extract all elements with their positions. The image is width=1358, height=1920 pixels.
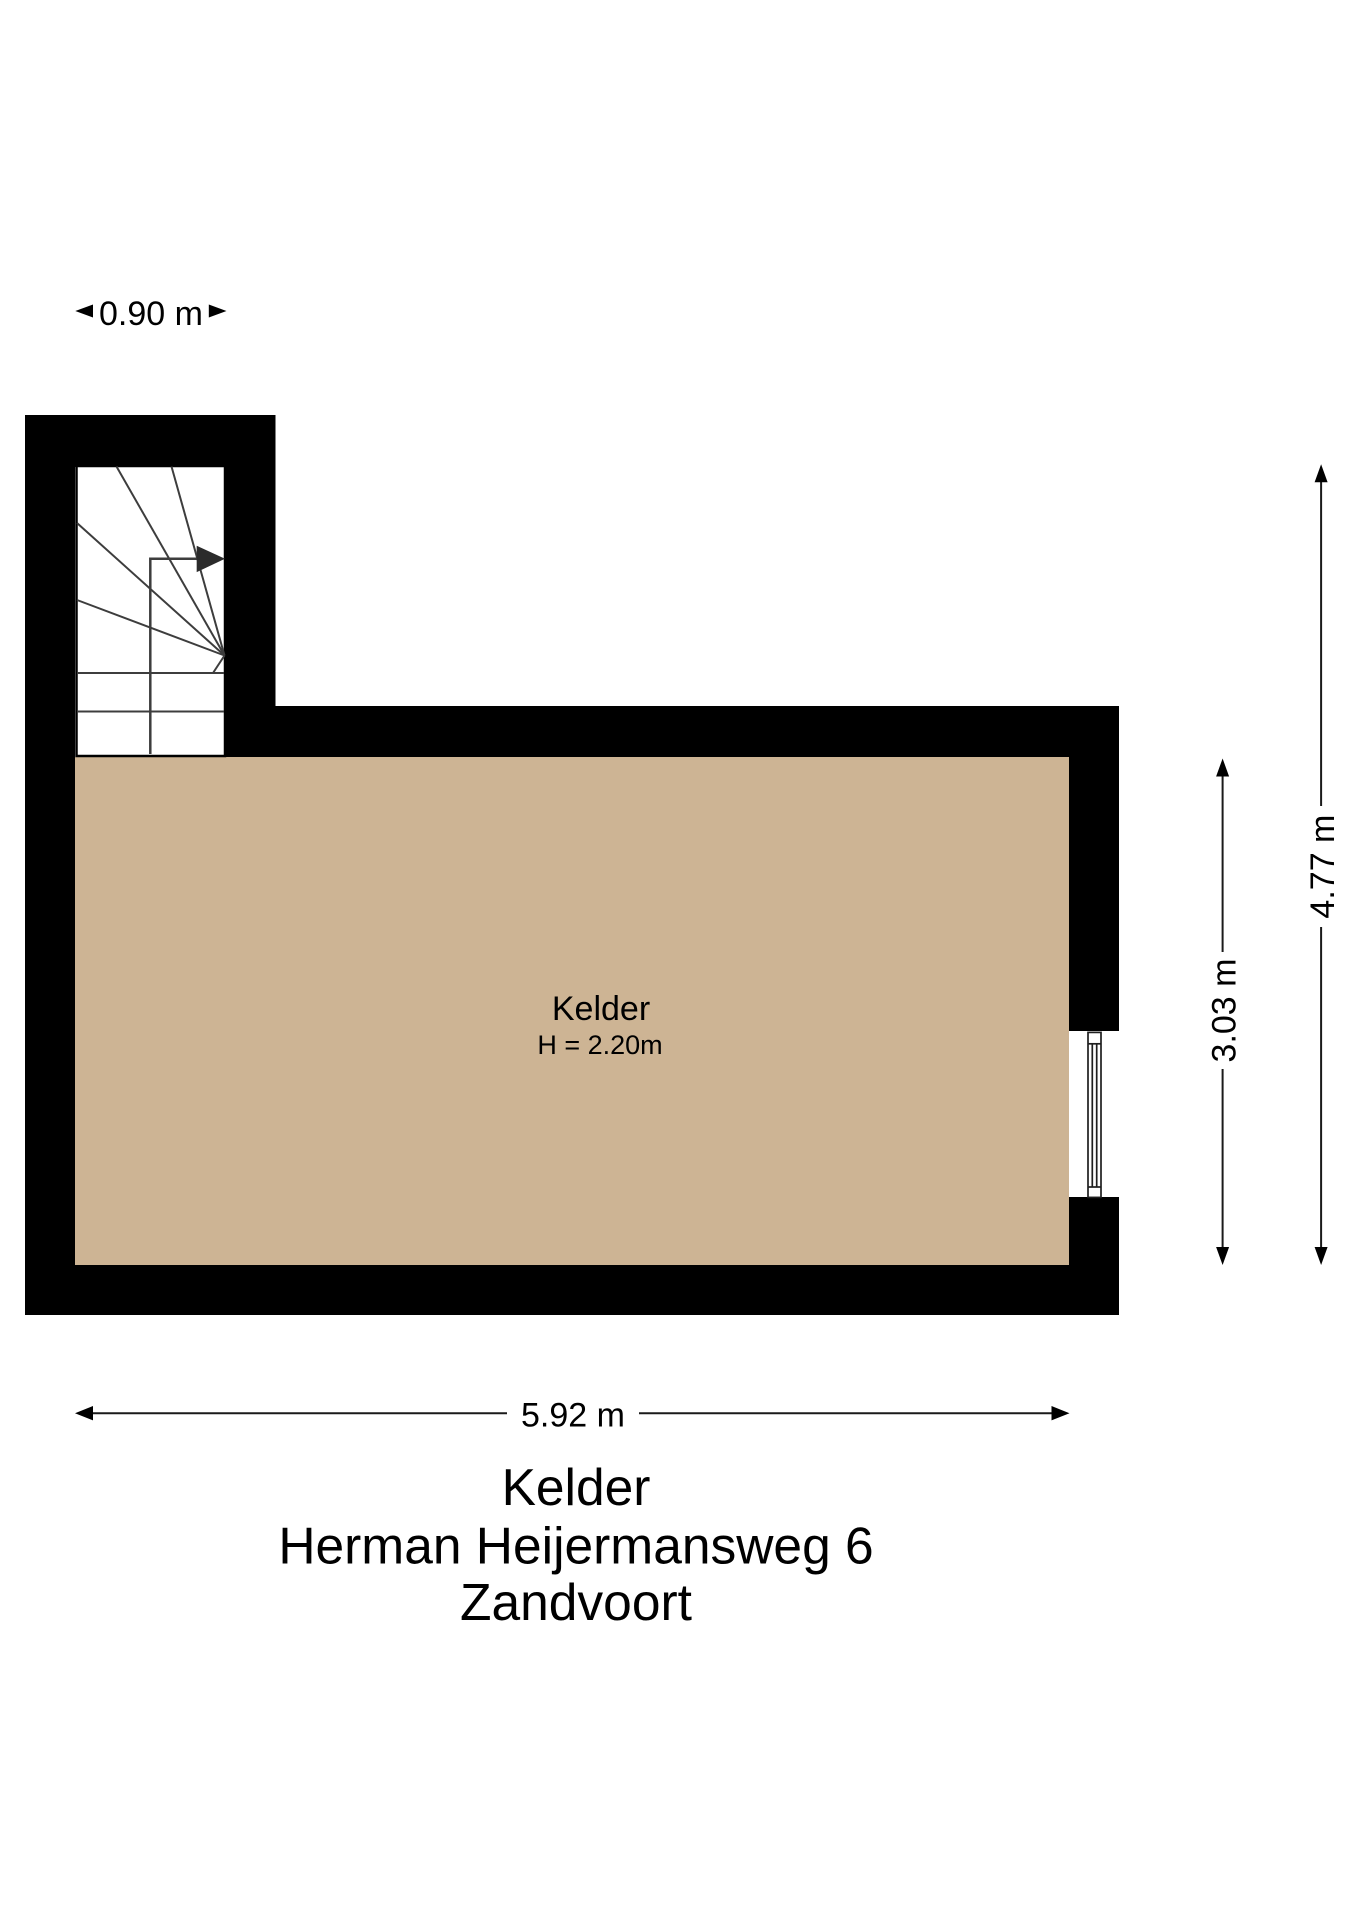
svg-text:Kelder: Kelder — [552, 990, 650, 1028]
svg-text:Zandvoort: Zandvoort — [460, 1573, 692, 1631]
svg-text:0.90 m: 0.90 m — [99, 295, 203, 333]
svg-text:5.92 m: 5.92 m — [521, 1396, 625, 1434]
svg-text:H = 2.20m: H = 2.20m — [537, 1030, 662, 1060]
svg-text:4.77 m: 4.77 m — [1304, 815, 1342, 919]
svg-text:3.03 m: 3.03 m — [1206, 959, 1244, 1063]
svg-text:Herman Heijermansweg 6: Herman Heijermansweg 6 — [278, 1517, 873, 1575]
svg-text:Kelder: Kelder — [502, 1458, 651, 1516]
